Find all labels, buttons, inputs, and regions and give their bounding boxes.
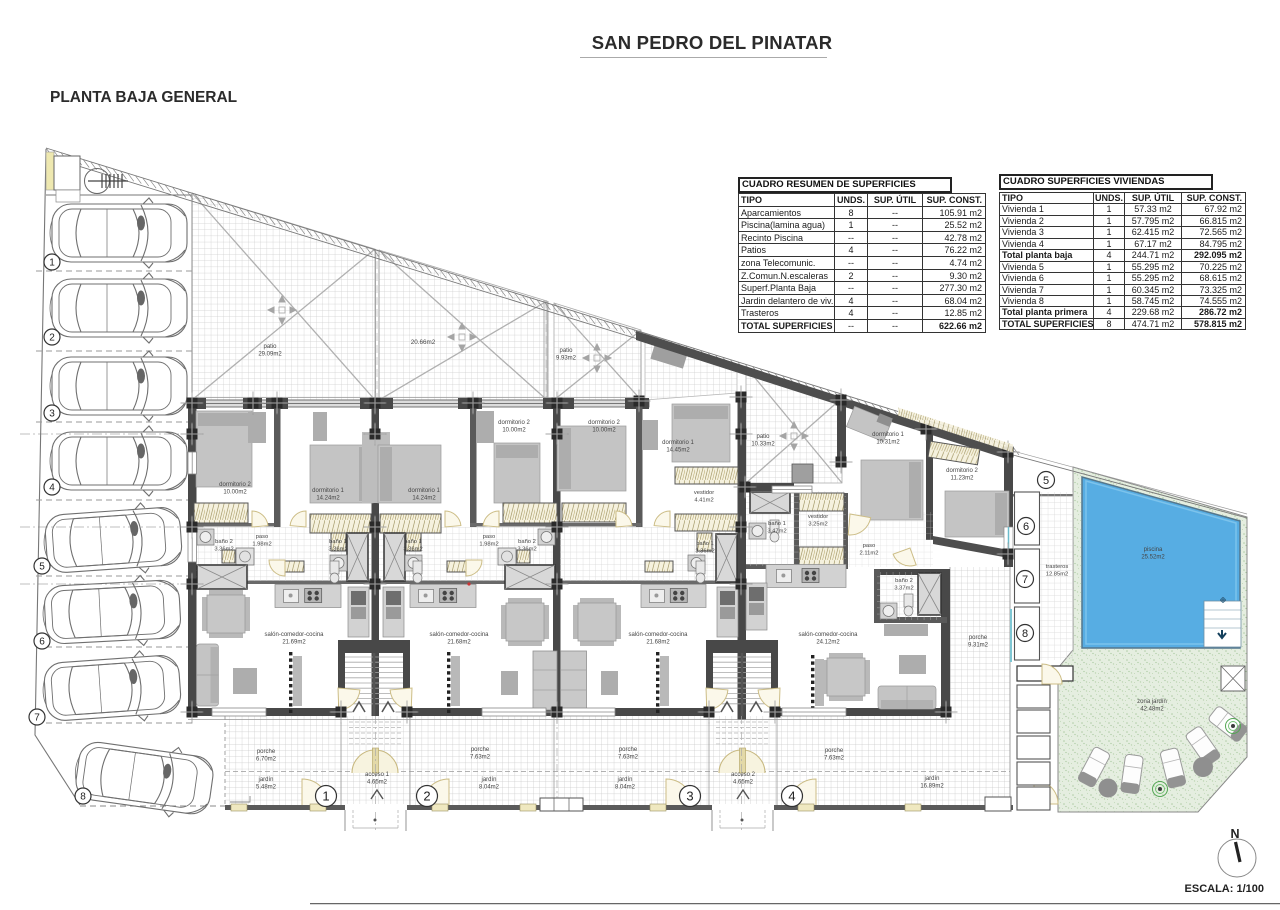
svg-text:42.48m2: 42.48m2 — [1140, 707, 1164, 713]
svg-text:5.48m2: 5.48m2 — [256, 785, 277, 791]
svg-text:acceso 2: acceso 2 — [731, 772, 756, 778]
svg-text:6: 6 — [1023, 521, 1029, 533]
svg-text:2: 2 — [423, 789, 430, 804]
svg-text:4.65m2: 4.65m2 — [733, 780, 754, 786]
svg-text:10.00m2: 10.00m2 — [502, 428, 526, 434]
svg-text:dormitorio 2: dormitorio 2 — [946, 468, 978, 474]
svg-text:baño 1: baño 1 — [404, 539, 422, 545]
svg-text:6: 6 — [39, 637, 45, 648]
svg-text:4.41m2: 4.41m2 — [694, 498, 713, 504]
svg-text:4: 4 — [49, 483, 55, 494]
svg-text:baño 1: baño 1 — [329, 539, 347, 545]
svg-text:4.65m2: 4.65m2 — [367, 780, 388, 786]
svg-text:3.36m2: 3.36m2 — [403, 547, 422, 553]
svg-text:patio: patio — [756, 434, 770, 440]
svg-text:jardín: jardín — [257, 777, 273, 783]
svg-text:24.12m2: 24.12m2 — [816, 640, 840, 646]
svg-text:2.11m2: 2.11m2 — [860, 551, 879, 557]
svg-text:21.68m2: 21.68m2 — [646, 640, 670, 646]
svg-text:N: N — [1230, 827, 1239, 841]
svg-text:3.36m2: 3.36m2 — [517, 547, 536, 553]
svg-text:4: 4 — [788, 789, 795, 804]
svg-text:3.36m2: 3.36m2 — [328, 547, 347, 553]
svg-text:salón-comedor-cocina: salón-comedor-cocina — [429, 632, 489, 638]
svg-text:11.23m2: 11.23m2 — [951, 476, 975, 482]
svg-text:acceso 1: acceso 1 — [365, 772, 390, 778]
svg-text:5: 5 — [1043, 475, 1049, 487]
svg-text:7: 7 — [1022, 574, 1028, 586]
svg-text:10.31m2: 10.31m2 — [876, 440, 900, 446]
svg-text:vestidor: vestidor — [694, 490, 714, 496]
svg-text:jardín: jardín — [616, 777, 632, 783]
svg-text:baño 1: baño 1 — [696, 541, 714, 547]
svg-text:porche: porche — [257, 749, 276, 755]
svg-text:baño 2: baño 2 — [895, 578, 913, 584]
svg-text:2: 2 — [49, 333, 55, 344]
svg-text:8: 8 — [80, 792, 86, 803]
svg-text:8: 8 — [1022, 628, 1028, 640]
svg-text:3: 3 — [49, 409, 55, 420]
svg-text:paso: paso — [256, 534, 269, 540]
svg-text:29.09m2: 29.09m2 — [258, 352, 282, 358]
svg-text:25.52m2: 25.52m2 — [1141, 555, 1165, 561]
svg-text:1: 1 — [49, 258, 55, 269]
svg-text:7: 7 — [34, 713, 40, 724]
svg-text:7.63m2: 7.63m2 — [470, 755, 491, 761]
svg-text:7.63m2: 7.63m2 — [824, 756, 845, 762]
svg-text:1.98m2: 1.98m2 — [252, 542, 271, 548]
svg-text:baño 2: baño 2 — [518, 539, 536, 545]
svg-text:7.63m2: 7.63m2 — [618, 755, 639, 761]
svg-text:21.68m2: 21.68m2 — [447, 640, 471, 646]
svg-text:6.70m2: 6.70m2 — [256, 757, 277, 763]
svg-text:3.47m2: 3.47m2 — [767, 529, 786, 535]
svg-text:dormitorio 1: dormitorio 1 — [872, 432, 904, 438]
svg-text:dormitorio 1: dormitorio 1 — [662, 440, 694, 446]
svg-text:baño 2: baño 2 — [215, 539, 233, 545]
svg-text:8.04m2: 8.04m2 — [479, 785, 500, 791]
svg-text:baño 1: baño 1 — [768, 521, 786, 527]
svg-text:porche: porche — [969, 635, 988, 641]
svg-text:10.00m2: 10.00m2 — [592, 428, 616, 434]
svg-text:10.00m2: 10.00m2 — [223, 490, 247, 496]
svg-text:dormitorio 1: dormitorio 1 — [408, 488, 440, 494]
svg-text:salón-comedor-cocina: salón-comedor-cocina — [798, 632, 858, 638]
svg-text:14.24m2: 14.24m2 — [316, 496, 340, 502]
svg-text:paso: paso — [863, 543, 876, 549]
svg-text:porche: porche — [619, 747, 638, 753]
svg-text:dormitorio 2: dormitorio 2 — [498, 420, 530, 426]
svg-text:salón-comedor-cocina: salón-comedor-cocina — [628, 632, 688, 638]
svg-text:paso: paso — [483, 534, 496, 540]
svg-text:20.66m2: 20.66m2 — [411, 339, 436, 346]
svg-text:zona jardín: zona jardín — [1137, 699, 1167, 705]
svg-text:9.31m2: 9.31m2 — [968, 643, 989, 649]
svg-text:dormitorio 1: dormitorio 1 — [312, 488, 344, 494]
svg-text:trasteros: trasteros — [1046, 564, 1069, 570]
svg-text:3.25m2: 3.25m2 — [808, 522, 827, 528]
svg-text:porche: porche — [825, 748, 844, 754]
svg-text:3.37m2: 3.37m2 — [894, 586, 913, 592]
svg-text:salón-comedor-cocina: salón-comedor-cocina — [264, 632, 324, 638]
svg-text:patio: patio — [263, 344, 277, 350]
svg-text:3.36m2: 3.36m2 — [214, 547, 233, 553]
svg-text:vestidor: vestidor — [808, 514, 828, 520]
svg-text:3: 3 — [686, 789, 693, 804]
svg-text:14.24m2: 14.24m2 — [412, 496, 436, 502]
svg-text:dormitorio 2: dormitorio 2 — [588, 420, 620, 426]
svg-text:5: 5 — [39, 562, 45, 573]
svg-text:1.98m2: 1.98m2 — [479, 542, 498, 548]
svg-text:3.36m2: 3.36m2 — [695, 549, 714, 555]
svg-text:9.93m2: 9.93m2 — [556, 356, 577, 362]
svg-text:16.89m2: 16.89m2 — [920, 784, 944, 790]
svg-text:patio: patio — [559, 348, 573, 354]
svg-text:jardín: jardín — [923, 776, 939, 782]
svg-text:8.04m2: 8.04m2 — [615, 785, 636, 791]
svg-text:21.69m2: 21.69m2 — [282, 640, 306, 646]
svg-text:10.33m2: 10.33m2 — [751, 442, 775, 448]
svg-text:1: 1 — [322, 789, 329, 804]
svg-text:12.85m2: 12.85m2 — [1046, 572, 1069, 578]
svg-text:jardín: jardín — [480, 777, 496, 783]
svg-text:dormitorio 2: dormitorio 2 — [219, 482, 251, 488]
svg-text:porche: porche — [471, 747, 490, 753]
svg-text:piscina: piscina — [1144, 547, 1163, 553]
svg-text:14.45m2: 14.45m2 — [666, 448, 690, 454]
